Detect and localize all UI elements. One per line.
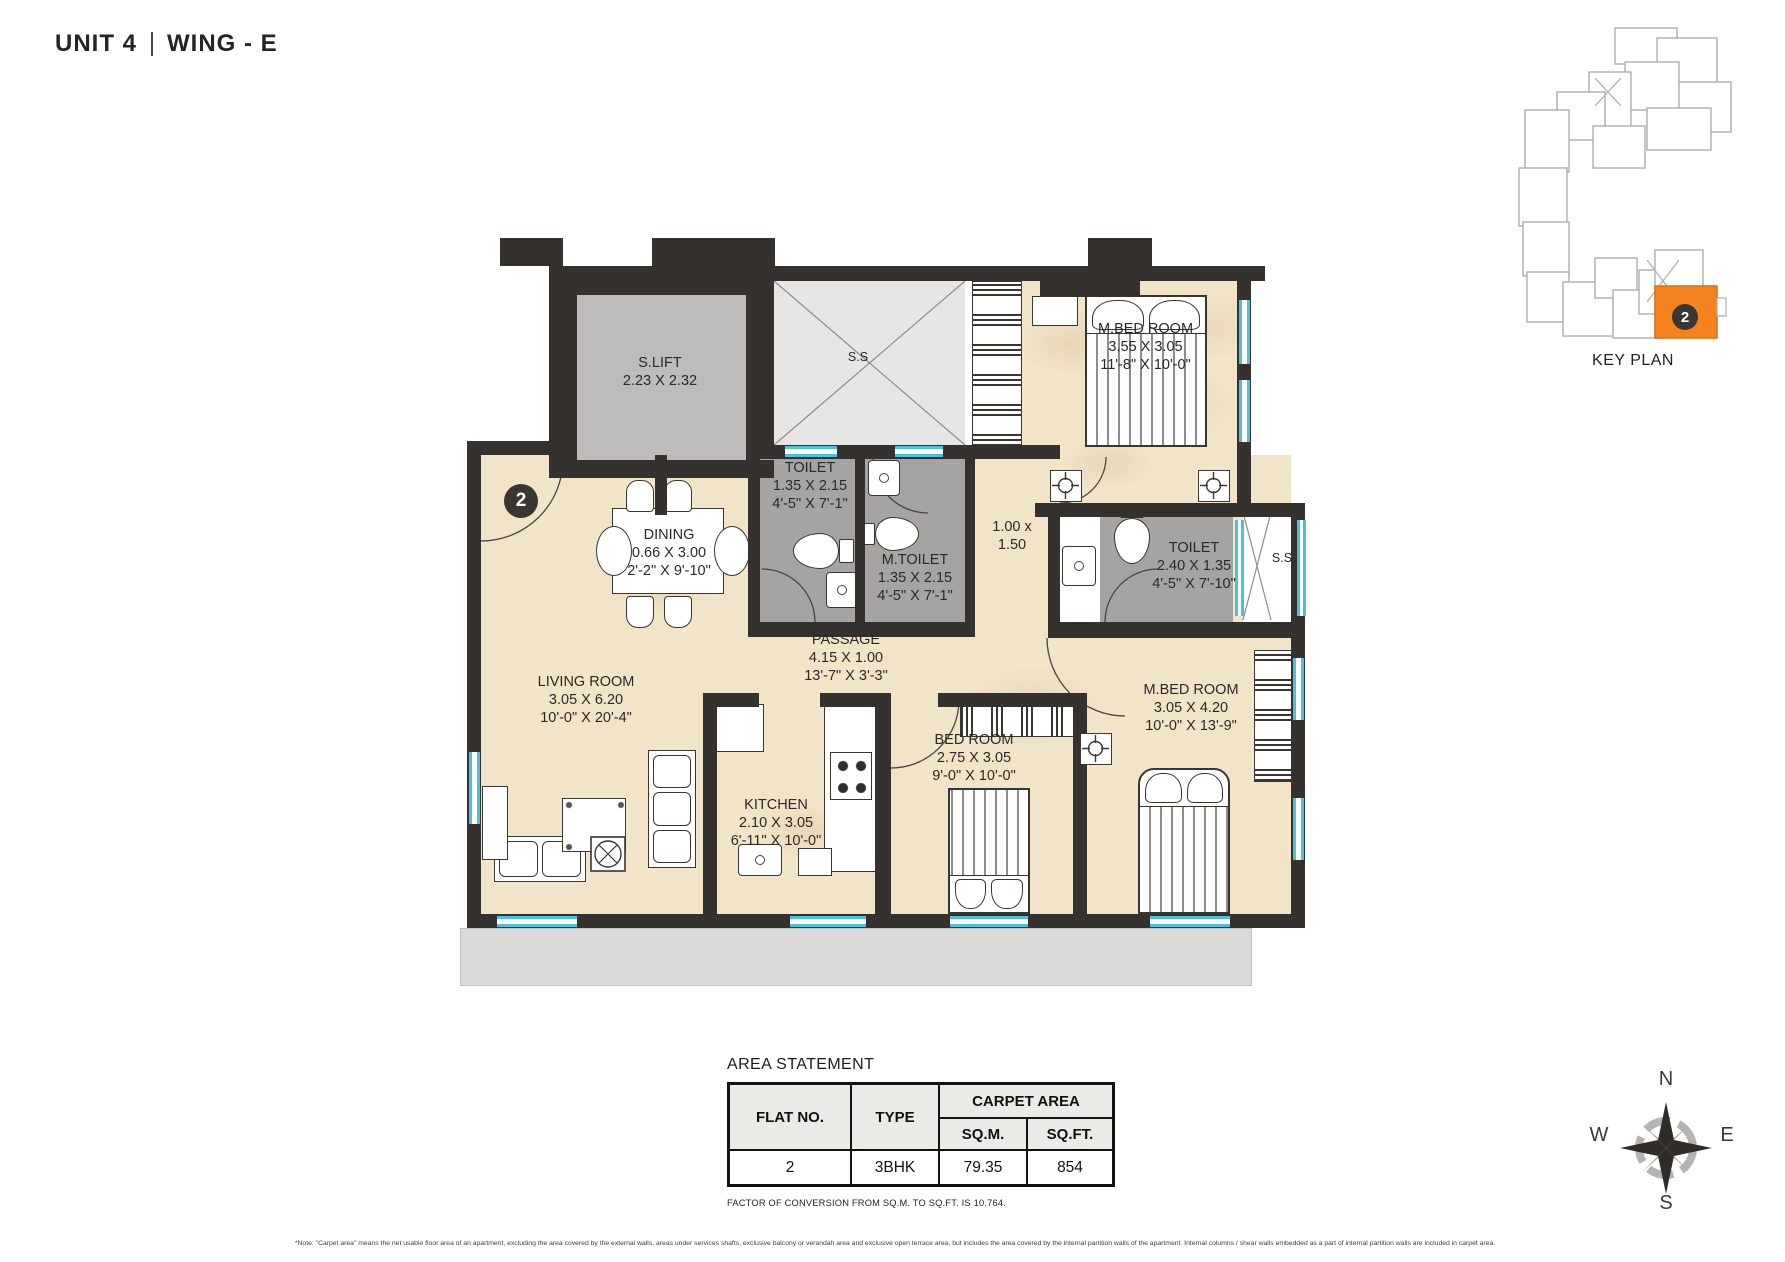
room-name: M.TOILET xyxy=(882,552,949,570)
bed-pillows xyxy=(950,875,1028,912)
window xyxy=(497,916,577,927)
room-dim-m: 3.55 X 3.05 xyxy=(1108,339,1182,357)
area-statement: AREA STATEMENT FLAT NO. TYPE CARPET AREA… xyxy=(727,1056,1115,1208)
window xyxy=(950,916,1028,927)
title-separator xyxy=(151,32,153,56)
window xyxy=(790,916,866,927)
wall xyxy=(965,455,975,635)
wall xyxy=(1040,281,1140,297)
wall xyxy=(549,266,1265,281)
cell-flat-no: 2 xyxy=(729,1150,852,1186)
room-label-bed2: BED ROOM 2.75 X 3.05 9'-0" X 10'-0" xyxy=(916,730,1032,788)
room-name: LIVING ROOM xyxy=(538,674,635,692)
toilet1-basin xyxy=(826,572,858,608)
mtoilet-basin xyxy=(868,460,900,496)
window xyxy=(895,446,943,457)
toilet1-wc xyxy=(793,533,839,569)
room-dim-m: 2.75 X 3.05 xyxy=(937,750,1011,768)
bed-blanket xyxy=(1140,807,1228,912)
wall xyxy=(760,281,774,459)
dining-chair xyxy=(664,480,692,512)
compass-north-label: N xyxy=(1646,1068,1686,1091)
col-header-sqft: SQ.FT. xyxy=(1027,1118,1114,1150)
window xyxy=(1293,798,1304,860)
wall xyxy=(1048,622,1305,638)
room-label-mbed2: M.BED ROOM 3.05 X 4.20 10'-0" X 13'-9" xyxy=(1130,680,1252,738)
column-marker-icon xyxy=(1050,470,1082,502)
col-header-type: TYPE xyxy=(851,1084,939,1151)
refrigerator xyxy=(716,704,764,752)
toilet2-basin xyxy=(1062,546,1096,586)
room-dim-ft: 11'-8" X 10'-0" xyxy=(1100,357,1191,375)
room-name: S.LIFT xyxy=(638,355,682,373)
cell-sqm: 79.35 xyxy=(939,1150,1027,1186)
room-dim-m: 1.35 X 2.15 xyxy=(878,570,952,588)
room-dim-ft: 9'-0" X 10'-0" xyxy=(932,768,1016,786)
col-header-carpet-area: CARPET AREA xyxy=(939,1084,1114,1119)
room-dim-m: 3.05 X 4.20 xyxy=(1154,700,1228,718)
wall xyxy=(1073,693,1087,914)
room-dim-m: 1.00 x xyxy=(992,519,1032,537)
window xyxy=(785,446,837,457)
room-dim-m: 4.15 X 1.00 xyxy=(809,650,883,668)
col-header-sqm: SQ.M. xyxy=(939,1118,1027,1150)
bed-master2 xyxy=(1138,768,1230,914)
room-name: TOILET xyxy=(785,460,836,478)
room-dim-m: 2.10 X 3.05 xyxy=(739,815,813,833)
room-name: PASSAGE xyxy=(812,632,880,650)
room-label-mtoilet: M.TOILET 1.35 X 2.15 4'-5" X 7'-1" xyxy=(860,552,970,606)
room-dim-ft: 10'-0" X 13'-9" xyxy=(1145,718,1237,736)
room-label-dining: DINING 0.66 X 3.00 2'-2" X 9'-10" xyxy=(610,525,728,583)
table-row: 2 3BHK 79.35 854 xyxy=(729,1150,1114,1186)
entry-unit-badge: 2 xyxy=(504,484,538,518)
col-header-flat-no: FLAT NO. xyxy=(729,1084,852,1151)
room-dim-m: 2.23 X 2.32 xyxy=(623,373,697,391)
room-dim-m: 3.05 X 6.20 xyxy=(549,692,623,710)
room-dim-m: 1.35 X 2.15 xyxy=(773,478,847,496)
floor-plan-page: UNIT 4 WING - E xyxy=(0,0,1785,1262)
room-label-passage: PASSAGE 4.15 X 1.00 13'-7" X 3'-3" xyxy=(790,632,902,686)
wall xyxy=(655,455,667,515)
room-dim-m: 2.40 X 1.35 xyxy=(1157,558,1231,576)
conversion-note: FACTOR OF CONVERSION FROM SQ.M. TO SQ.FT… xyxy=(727,1198,1115,1208)
wardrobe-mbed2 xyxy=(1254,650,1294,782)
wall xyxy=(467,441,563,455)
wall xyxy=(652,238,775,266)
room-dim-ft: 13'-7" X 3'-3" xyxy=(804,668,888,686)
room-name: S.S xyxy=(1272,551,1292,567)
dining-chair xyxy=(626,480,654,512)
wing-label: WING - E xyxy=(167,30,278,58)
window xyxy=(1239,300,1250,364)
room-dim-ft: 10'-0" X 20'-4" xyxy=(540,710,632,728)
room-dim-ft: 4'-5" X 7'-1" xyxy=(877,588,952,606)
compass-west-label: W xyxy=(1584,1124,1614,1147)
room-label-kitchen: KITCHEN 2.10 X 3.05 6'-11" X 10'-0" xyxy=(718,795,834,853)
room-dim-m: 0.66 X 3.00 xyxy=(632,545,706,563)
room-name: KITCHEN xyxy=(744,797,808,815)
window xyxy=(469,752,480,824)
key-plan-title: KEY PLAN xyxy=(1558,352,1708,370)
column-marker-icon xyxy=(1198,470,1230,502)
carpet-area-footnote: *Note: "Carpet area" means the net usabl… xyxy=(150,1240,1640,1247)
wall xyxy=(467,455,481,928)
room-dim-ft: 4'-5" X 7'-1" xyxy=(772,496,847,514)
bed-pillows xyxy=(1140,770,1228,807)
room-label-living: LIVING ROOM 3.05 X 6.20 10'-0" X 20'-4" xyxy=(525,672,647,730)
dining-chair xyxy=(626,596,654,628)
room-name: TOILET xyxy=(1169,540,1220,558)
cell-type: 3BHK xyxy=(851,1150,939,1186)
page-title: UNIT 4 WING - E xyxy=(55,30,278,58)
wall xyxy=(875,693,891,914)
wall xyxy=(938,693,1087,707)
room-name: BED ROOM xyxy=(935,732,1014,750)
area-statement-title: AREA STATEMENT xyxy=(727,1056,1115,1074)
wall xyxy=(1048,503,1060,636)
column-marker-icon xyxy=(1080,733,1112,765)
tv-unit xyxy=(482,786,508,860)
room-name: M.BED ROOM xyxy=(1143,682,1238,700)
wall xyxy=(820,693,877,707)
window xyxy=(1297,520,1306,616)
compass-east-label: E xyxy=(1712,1124,1742,1147)
room-dim-ft: 2'-2" X 9'-10" xyxy=(627,563,711,581)
service-duct xyxy=(972,281,1022,447)
compass-south-label: S xyxy=(1646,1192,1686,1215)
terrace-strip xyxy=(460,928,1252,986)
wall xyxy=(500,238,563,266)
wall xyxy=(748,455,760,635)
area-statement-table: FLAT NO. TYPE CARPET AREA SQ.M. SQ.FT. 2… xyxy=(727,1082,1115,1187)
room-dim-ft: 6'-11" X 10'-0" xyxy=(731,833,822,851)
room-dim-m: 1.50 xyxy=(998,537,1026,555)
window xyxy=(1150,916,1230,927)
room-label-ss-shaft: S.S xyxy=(1262,550,1302,568)
room-name: M.BED ROOM xyxy=(1098,321,1193,339)
room-label-staircase: S.S xyxy=(828,348,888,368)
room-name: DINING xyxy=(644,527,695,545)
bed-blanket xyxy=(950,790,1028,875)
cell-sqft: 854 xyxy=(1027,1150,1114,1186)
key-plan-drawing xyxy=(1495,20,1745,360)
stove xyxy=(830,752,872,800)
window xyxy=(1293,658,1304,720)
room-label-toilet2: TOILET 2.40 X 1.35 4'-5" X 7'-10" xyxy=(1134,540,1254,594)
washing-machine-icon xyxy=(590,836,626,872)
room-name: S.S xyxy=(848,350,868,366)
wall xyxy=(1088,238,1152,266)
key-plan-unit-badge: 2 xyxy=(1672,304,1698,330)
unit-label: UNIT 4 xyxy=(55,30,137,58)
wall xyxy=(703,693,717,914)
room-label-toilet1: TOILET 1.35 X 2.15 4'-5" X 7'-1" xyxy=(763,460,857,514)
room-label-lobby: 1.00 x 1.50 xyxy=(978,518,1046,556)
room-label-mbed1: M.BED ROOM 3.55 X 3.05 11'-8" X 10'-0" xyxy=(1058,318,1233,378)
room-label-slift: S.LIFT 2.23 X 2.32 xyxy=(590,345,730,400)
sofa-long xyxy=(648,750,696,868)
window xyxy=(1239,380,1250,442)
room-dim-ft: 4'-5" X 7'-10" xyxy=(1152,576,1236,594)
bed-bedroom2 xyxy=(948,788,1030,914)
wall xyxy=(703,693,759,707)
wall xyxy=(1035,503,1265,517)
dining-chair xyxy=(664,596,692,628)
